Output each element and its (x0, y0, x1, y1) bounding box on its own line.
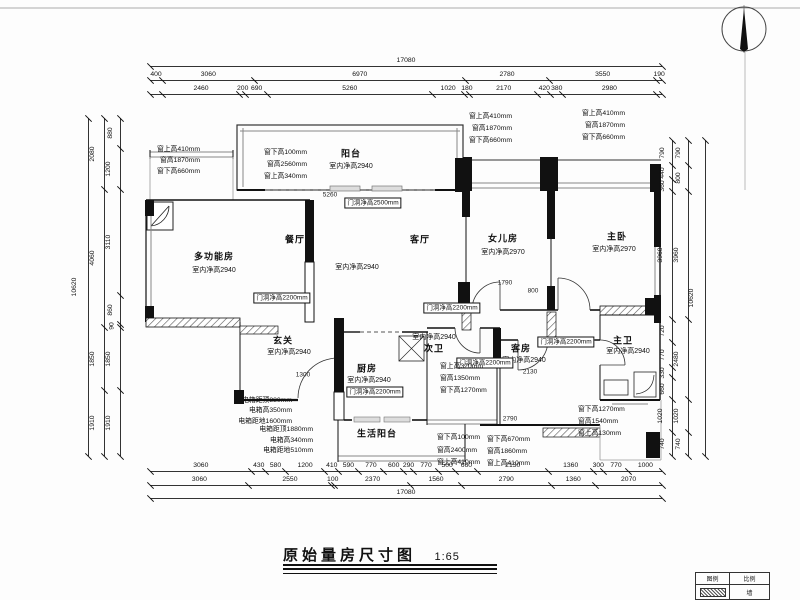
dimension-value: 2170 (496, 85, 511, 92)
ceiling-height-label: 室内净高2940 (267, 347, 311, 357)
annotation-label: 窗高2560mm (267, 158, 307, 168)
annotation-label: 窗下高660mm (582, 131, 625, 141)
dimension-value: 1000 (638, 462, 653, 469)
dimension-value: 1360 (566, 476, 581, 483)
dimension-value: 740 (675, 438, 682, 449)
dimension-value: 3960 (657, 248, 664, 263)
annotation-label: 窗上高130mm (578, 427, 621, 437)
dimension-value: 380 (551, 85, 562, 92)
legend-label-1: 图例 (706, 574, 718, 583)
legend-label-2: 比例 (743, 574, 755, 583)
annotation-label: 窗下高1270mm (578, 403, 625, 413)
dimension-value: 360 (659, 180, 666, 191)
dimension-value: 860 (107, 304, 114, 315)
dimension-value: 2780 (499, 71, 514, 78)
dimension-value: 740 (659, 438, 666, 449)
room-label: 主卧 (607, 230, 627, 243)
annotation-label: 窗上高410mm (582, 107, 625, 117)
annotation-label: 窗高2400mm (437, 444, 477, 454)
door-height-label: 门洞净高2200mm (537, 337, 594, 348)
dimension-value: 770 (610, 462, 621, 469)
dimension-value: 690 (251, 85, 262, 92)
dimension-value: 2790 (499, 476, 514, 483)
legend-label-3: 墙 (746, 588, 752, 597)
ceiling-height-label: 室内净高2970 (481, 247, 525, 257)
dimension-value: 10620 (688, 289, 695, 308)
door-height-label: 门洞净高2200mm (423, 303, 480, 314)
annotation-label: 窗上高410mm (157, 143, 200, 153)
annotation-label: 电箱距顶880mm (242, 394, 292, 404)
ceiling-height-label: 室内净高2970 (592, 244, 636, 254)
dimension-value: 1910 (89, 416, 96, 431)
interior-dimension: 2790 (503, 416, 517, 423)
interior-dimension: 2130 (523, 369, 537, 376)
dimension-value: 660 (461, 462, 472, 469)
annotation-label: 窗上高320mm (440, 360, 483, 370)
title-underline (283, 568, 497, 574)
dimension-value: 600 (388, 462, 399, 469)
dimension-value: 330 (659, 367, 666, 378)
dimension-value: 1850 (105, 352, 112, 367)
annotation-label: 窗上高410mm (469, 110, 512, 120)
dimension-value: 1020 (673, 408, 680, 423)
interior-dimension: 5260 (323, 192, 337, 199)
dimension-value: 17080 (397, 57, 416, 64)
interior-dimension: 800 (528, 288, 539, 295)
dimension-value: 300 (593, 462, 604, 469)
door-height-label: 门洞净高2500mm (344, 198, 401, 209)
dimension-value: 790 (675, 147, 682, 158)
dimension-value: 2070 (621, 476, 636, 483)
annotation-label: 窗高1870mm (472, 122, 512, 132)
dimension-value: 3110 (105, 235, 112, 250)
room-label: 玄关 (273, 334, 293, 347)
dimension-value: 770 (365, 462, 376, 469)
north-arrow-icon (722, 5, 766, 53)
dimension-value: 3060 (192, 476, 207, 483)
dimension-value: 1360 (563, 462, 578, 469)
ceiling-height-label: 室内净高2940 (329, 161, 373, 171)
dimension-value: 790 (659, 147, 666, 158)
dimension-value: 440 (659, 167, 666, 178)
annotation-label: 窗高1870mm (160, 154, 200, 164)
dimension-value: 100 (327, 476, 338, 483)
drawing-title-block: 原始量房尺寸图 1:65 (283, 544, 497, 574)
dimension-value: 1020 (657, 408, 664, 423)
legend-block: 图例 比例 墙 (695, 572, 770, 600)
room-label: 阳台 (341, 147, 361, 160)
dimension-value: 3060 (201, 71, 216, 78)
annotation-label: 窗高1860mm (487, 445, 527, 455)
dimension-value: 90 (109, 322, 116, 330)
dimension-value: 6970 (352, 71, 367, 78)
annotation-label: 窗下高100mm (437, 431, 480, 441)
dimension-value: 660 (659, 383, 666, 394)
annotation-label: 电箱高340mm (270, 434, 313, 444)
floor-plan-sheet: 阳台室内净高2940多功能房室内净高2940餐厅客厅室内净高2940女儿房室内净… (0, 0, 800, 600)
dimension-value: 2460 (193, 85, 208, 92)
drawing-scale: 1:65 (434, 551, 459, 563)
dimension-value: 1200 (105, 161, 112, 176)
annotation-label: 电箱高350mm (249, 404, 292, 414)
dimension-value: 1020 (441, 85, 456, 92)
dimension-value: 2550 (282, 476, 297, 483)
dimension-value: 770 (659, 349, 666, 360)
door-height-label: 门洞净高2200mm (346, 387, 403, 398)
room-label: 多功能房 (194, 250, 234, 263)
interior-dimension: 1790 (498, 280, 512, 287)
annotation-label: 电箱距顶1880mm (259, 423, 313, 433)
page-title: 原始量房尺寸图 (283, 544, 416, 565)
dimension-value: 1910 (105, 416, 112, 431)
annotation-label: 窗上高340mm (264, 170, 307, 180)
dimension-value: 1850 (89, 352, 96, 367)
dimension-value: 880 (107, 127, 114, 138)
annotation-label: 窗下高660mm (469, 134, 512, 144)
dimension-value: 1200 (297, 462, 312, 469)
annotation-label: 电箱距地510mm (263, 444, 313, 454)
interior-dimension: 1300 (296, 372, 310, 379)
dimension-value: 4060 (89, 251, 96, 266)
dimension-value: 3550 (595, 71, 610, 78)
room-label: 客房 (511, 342, 531, 355)
dimension-value: 3960 (673, 248, 680, 263)
dimension-value: 290 (403, 462, 414, 469)
dimension-value: 2980 (602, 85, 617, 92)
dimension-value: 17080 (397, 489, 416, 496)
room-label: 餐厅 (285, 233, 305, 246)
dimension-value: 720 (659, 325, 666, 336)
dimension-value: 2080 (89, 146, 96, 161)
dimension-value: 1560 (428, 476, 443, 483)
room-label: 次卫 (424, 342, 444, 355)
dimension-value: 3060 (193, 462, 208, 469)
annotation-label: 窗高1540mm (578, 415, 618, 425)
dimension-value: 2130 (505, 462, 520, 469)
ceiling-height-label: 室内净高2940 (335, 262, 379, 272)
dimension-value: 580 (270, 462, 281, 469)
room-label: 厨房 (357, 362, 377, 375)
room-label: 女儿房 (488, 232, 518, 245)
dimension-value: 590 (343, 462, 354, 469)
dimension-value: 10620 (71, 278, 78, 297)
dimension-value: 2370 (365, 476, 380, 483)
annotation-label: 窗下高100mm (264, 146, 307, 156)
wall-hatch-swatch-icon (700, 588, 726, 597)
room-label: 生活阳台 (357, 427, 397, 440)
dimension-value: 2480 (673, 352, 680, 367)
ceiling-height-label: 室内净高2940 (347, 375, 391, 385)
door-height-label: 门洞净高2200mm (253, 293, 310, 304)
ceiling-height-label: 室内净高2940 (192, 265, 236, 275)
annotation-label: 窗高1350mm (440, 372, 480, 382)
annotation-label: 窗下高660mm (157, 165, 200, 175)
annotation-label: 窗下高670mm (487, 433, 530, 443)
annotation-label: 窗下高1270mm (440, 384, 487, 394)
room-label: 客厅 (410, 233, 430, 246)
dimension-value: 770 (420, 462, 431, 469)
ceiling-height-label: 室内净高2940 (606, 346, 650, 356)
annotation-label: 窗高1870mm (585, 119, 625, 129)
ceiling-height-label: 室内净高2940 (412, 332, 456, 342)
room-label: 主卫 (613, 334, 633, 347)
dimension-value: 800 (675, 173, 682, 184)
dimension-value: 5260 (342, 85, 357, 92)
